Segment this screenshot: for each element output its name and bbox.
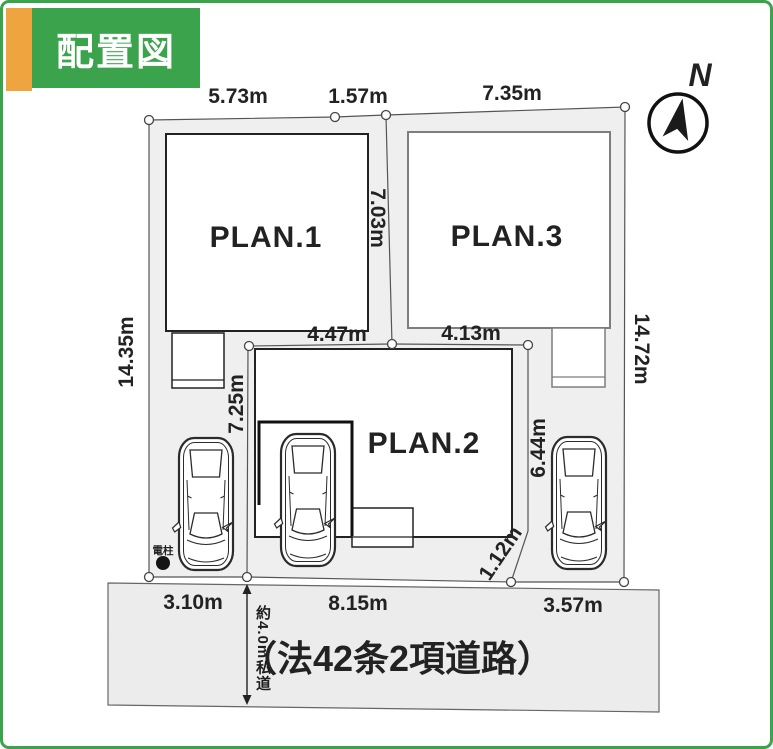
page-title: 配置図 [56,21,176,76]
dim-mid-horiz-left: 4.47m [307,323,367,346]
site-plan-svg: 電柱 N PLAN.1 PLAN.3 PLAN.2 [3,3,770,746]
north-label: N [688,57,712,93]
dim-mid-right-vertical: 6.44m [527,418,550,478]
utility-pole-label: 電柱 [153,544,174,557]
boundary-marker [145,573,154,582]
boundary-marker [331,113,340,122]
layout-plan-canvas: 電柱 N PLAN.1 PLAN.3 PLAN.2 [0,0,773,749]
plan2-porch [352,508,413,547]
dim-bottom-left: 3.10m [163,591,223,614]
plan3-label: PLAN.3 [451,220,564,253]
dim-bottom-right: 3.57m [543,594,603,617]
car-top-view-right [546,437,607,569]
dim-mid-vertical: 7.03m [366,188,389,248]
car-top-view-left [173,438,234,570]
boundary-marker [620,578,629,587]
dim-top-left: 5.73m [208,85,268,108]
boundary-marker [507,578,516,587]
dim-left-side: 14.35m [115,316,138,387]
car-top-view-middle [275,434,336,566]
dim-top-mid: 1.57m [328,85,388,108]
boundary-marker [382,111,391,120]
dim-mid-left-vertical: 7.25m [225,374,248,434]
boundary-marker [145,116,154,125]
dim-mid-horiz-right: 4.13m [441,322,501,345]
utility-pole-dot [156,556,170,570]
north-indicator: N [649,57,712,152]
road-label: （法42条2項道路） [241,638,553,679]
plan2-label: PLAN.2 [368,427,481,460]
boundary-marker [524,341,533,350]
boundary-marker [621,103,630,112]
title-block: 配置図 [32,8,200,88]
boundary-marker [388,340,397,349]
dim-bottom-mid: 8.15m [328,592,388,615]
boundary-marker [243,573,252,582]
boundary-marker [245,342,254,351]
title-accent-stripe [6,8,32,91]
dim-top-right: 7.35m [482,82,542,105]
plan1-label: PLAN.1 [210,221,323,254]
dim-right-side: 14.72m [630,313,653,384]
road-width-note: 約4.0m私道 [253,589,272,707]
plan3-porch [552,328,605,387]
